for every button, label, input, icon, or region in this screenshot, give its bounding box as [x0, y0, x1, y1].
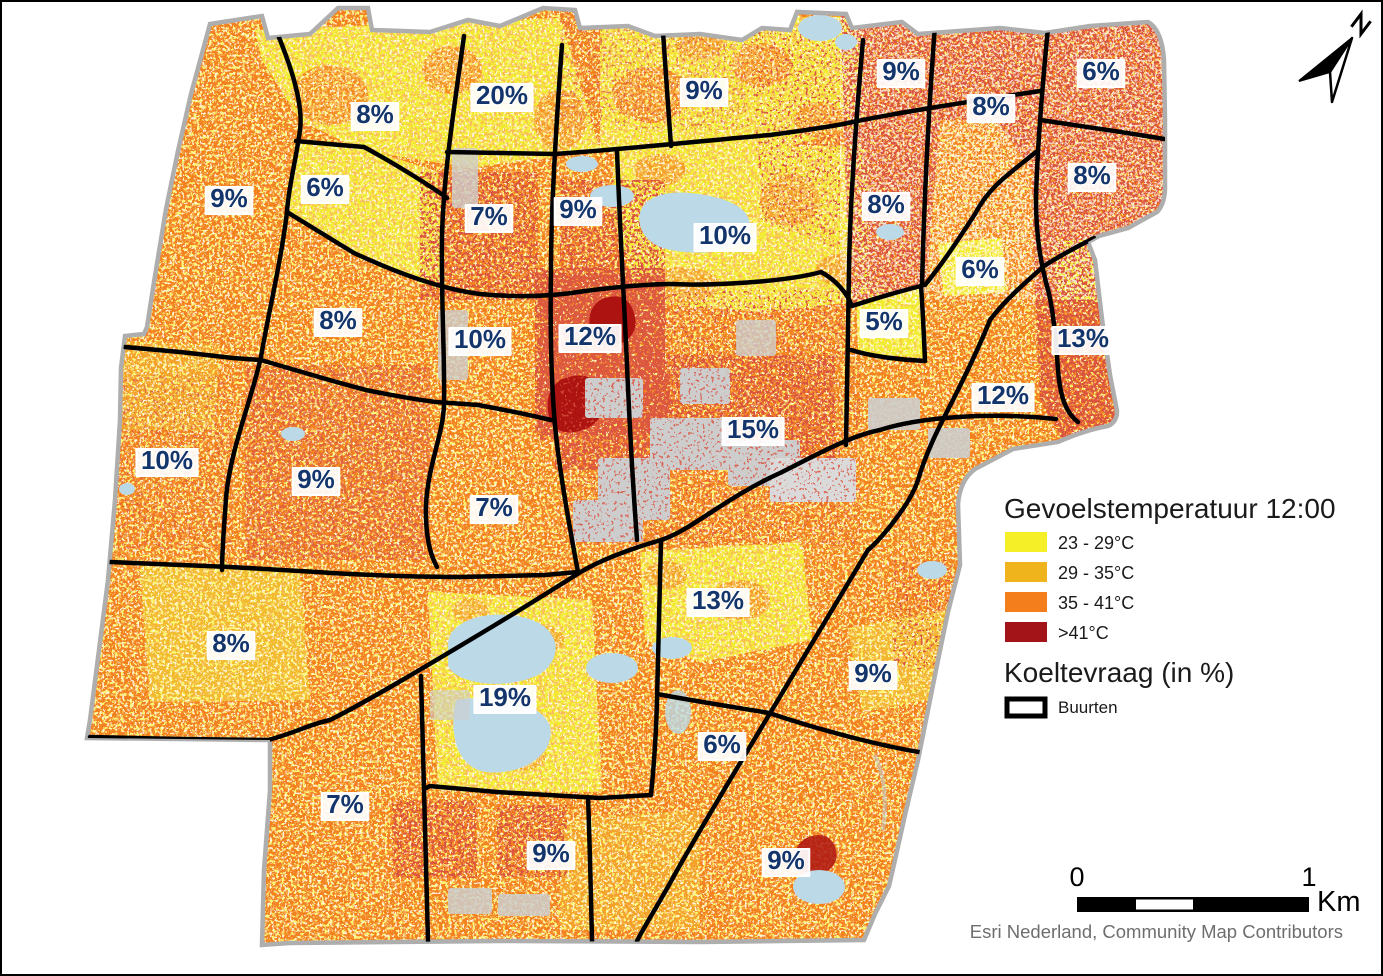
- svg-text:12%: 12%: [564, 321, 616, 351]
- svg-text:9%: 9%: [767, 845, 805, 875]
- svg-text:Gevoelstemperatuur 12:00: Gevoelstemperatuur 12:00: [1004, 493, 1336, 524]
- svg-text:9%: 9%: [559, 194, 597, 224]
- svg-text:13%: 13%: [1057, 323, 1109, 353]
- svg-text:15%: 15%: [727, 414, 779, 444]
- svg-text:13%: 13%: [692, 585, 744, 615]
- svg-text:23 - 29°C: 23 - 29°C: [1058, 533, 1134, 553]
- svg-text:20%: 20%: [476, 80, 528, 110]
- svg-text:7%: 7%: [326, 789, 364, 819]
- svg-text:Koeltevraag (in %): Koeltevraag (in %): [1004, 657, 1234, 688]
- svg-text:9%: 9%: [532, 838, 570, 868]
- svg-text:8%: 8%: [867, 189, 905, 219]
- svg-text:9%: 9%: [297, 464, 335, 494]
- svg-text:8%: 8%: [319, 305, 357, 335]
- svg-text:35 - 41°C: 35 - 41°C: [1058, 593, 1134, 613]
- svg-text:29 - 35°C: 29 - 35°C: [1058, 563, 1134, 583]
- svg-text:1: 1: [1301, 862, 1316, 892]
- svg-text:0: 0: [1069, 862, 1084, 892]
- svg-text:8%: 8%: [972, 91, 1010, 121]
- svg-text:>41°C: >41°C: [1058, 623, 1109, 643]
- svg-text:8%: 8%: [212, 628, 250, 658]
- svg-text:7%: 7%: [470, 201, 508, 231]
- svg-text:7%: 7%: [475, 492, 513, 522]
- svg-text:Km: Km: [1317, 886, 1361, 918]
- svg-text:10%: 10%: [699, 220, 751, 250]
- svg-text:10%: 10%: [141, 445, 193, 475]
- svg-text:6%: 6%: [961, 254, 999, 284]
- svg-text:19%: 19%: [479, 682, 531, 712]
- svg-text:6%: 6%: [306, 172, 344, 202]
- svg-text:8%: 8%: [1073, 160, 1111, 190]
- svg-text:Buurten: Buurten: [1058, 698, 1118, 717]
- svg-text:9%: 9%: [882, 56, 920, 86]
- svg-text:10%: 10%: [454, 324, 506, 354]
- svg-text:Esri Nederland, Community Map: Esri Nederland, Community Map Contributo…: [970, 921, 1343, 942]
- svg-text:6%: 6%: [1082, 56, 1120, 86]
- svg-text:9%: 9%: [685, 75, 723, 105]
- svg-text:12%: 12%: [977, 380, 1029, 410]
- svg-text:9%: 9%: [210, 183, 248, 213]
- svg-text:9%: 9%: [854, 658, 892, 688]
- svg-text:5%: 5%: [865, 306, 903, 336]
- svg-text:8%: 8%: [356, 99, 394, 129]
- svg-text:6%: 6%: [703, 729, 741, 759]
